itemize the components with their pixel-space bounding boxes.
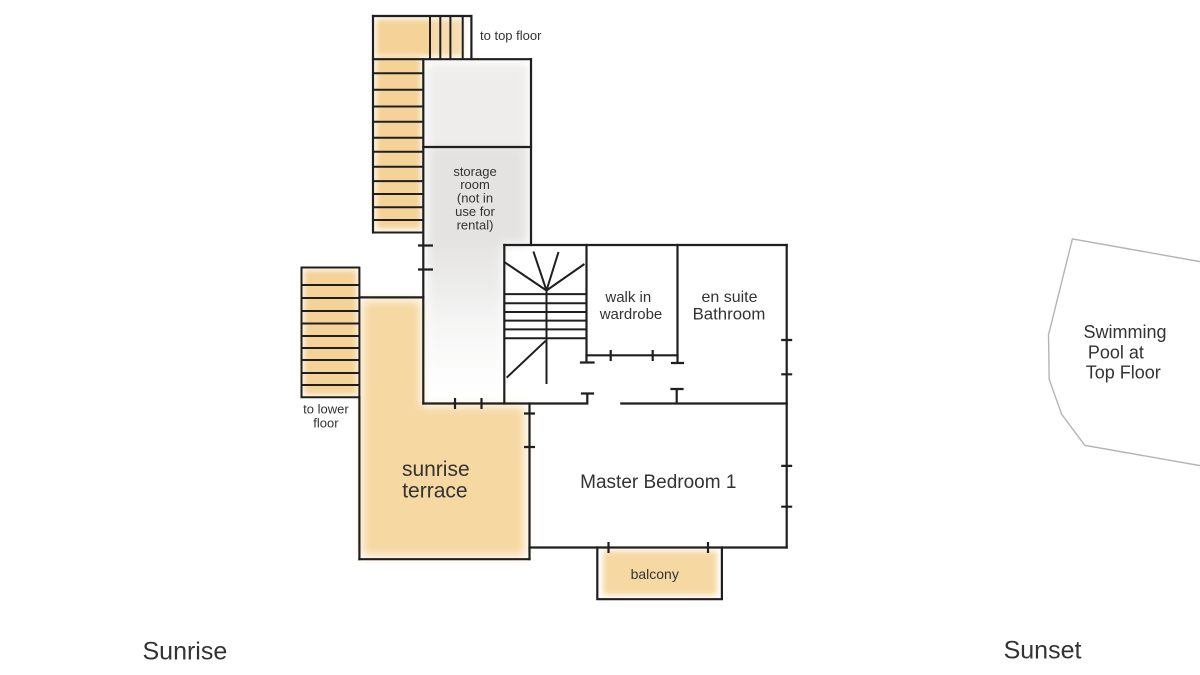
svg-text:rental): rental) — [457, 217, 494, 232]
svg-text:Sunrise: Sunrise — [143, 638, 228, 666]
svg-text:Bathroom: Bathroom — [693, 305, 766, 324]
svg-text:Top Floor: Top Floor — [1086, 362, 1161, 382]
svg-text:terrace: terrace — [402, 480, 467, 503]
svg-text:Swimming: Swimming — [1083, 322, 1166, 342]
svg-text:walk in: walk in — [604, 289, 651, 306]
svg-text:sunrise: sunrise — [402, 458, 470, 481]
svg-text:balcony: balcony — [631, 566, 679, 582]
svg-text:Sunset: Sunset — [1004, 637, 1082, 665]
svg-text:floor: floor — [313, 416, 339, 431]
svg-text:Pool at: Pool at — [1088, 342, 1144, 362]
svg-text:wardrobe: wardrobe — [599, 306, 663, 323]
svg-text:to lower: to lower — [303, 402, 349, 417]
svg-text:to top floor: to top floor — [480, 28, 542, 43]
svg-text:Master Bedroom 1: Master Bedroom 1 — [580, 472, 736, 493]
